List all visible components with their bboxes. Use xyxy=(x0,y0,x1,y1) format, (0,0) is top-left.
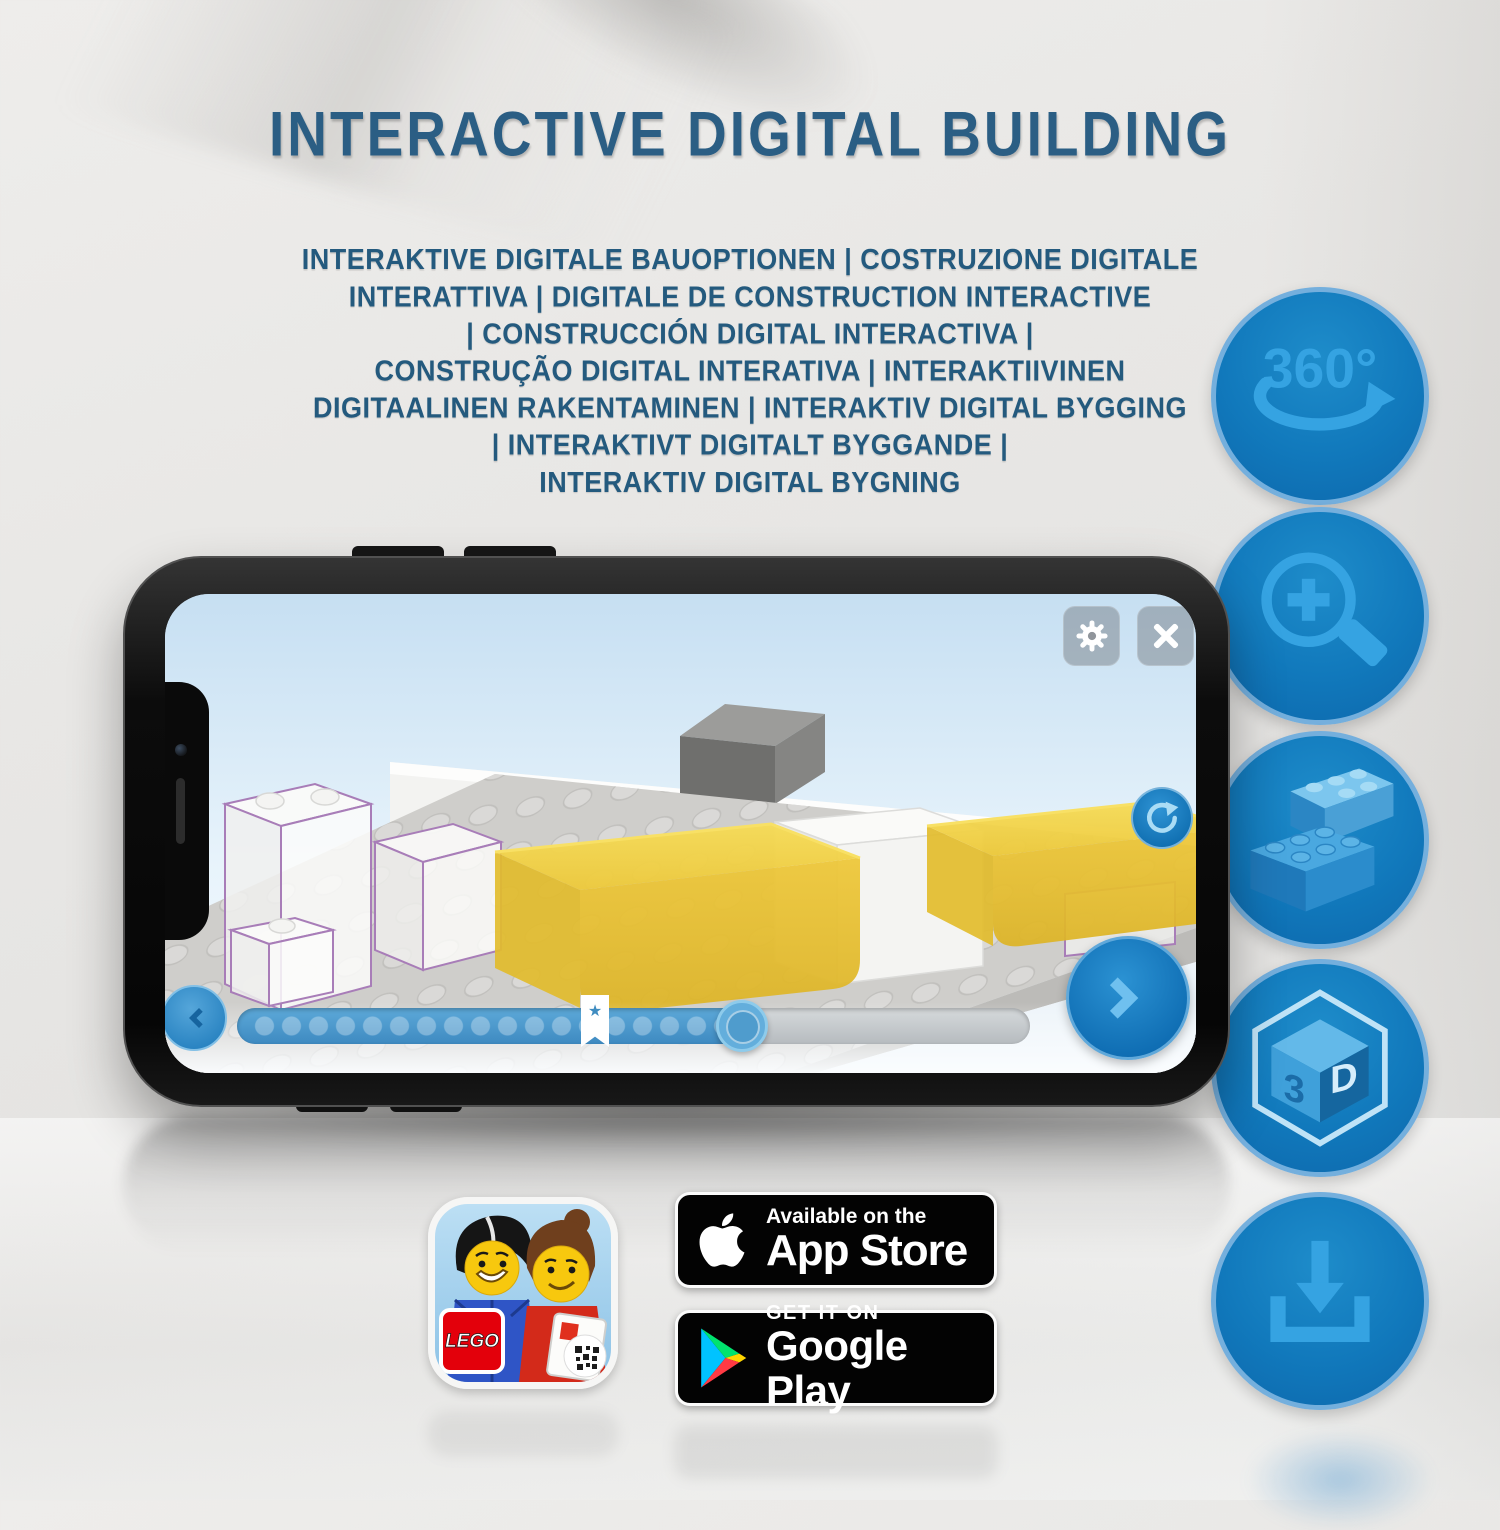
phone-mockup: ★ xyxy=(123,556,1230,1107)
lego-logo-text: LEGO xyxy=(445,1331,499,1352)
lego-app-artwork: LEGO xyxy=(435,1204,611,1382)
google-play-badge[interactable]: GET IT ON Google Play xyxy=(675,1310,997,1406)
phone-notch xyxy=(165,682,209,940)
app-store-tagline: Available on the xyxy=(766,1206,967,1228)
chevron-right-icon xyxy=(1097,967,1159,1029)
app-icon-reflection xyxy=(428,1412,618,1456)
app-store-label: App Store xyxy=(766,1228,967,1274)
badge-reflection xyxy=(675,1426,997,1478)
build-progress-slider[interactable]: ★ xyxy=(237,1008,1030,1044)
gear-icon xyxy=(1074,618,1110,654)
apple-logo-icon xyxy=(678,1208,766,1272)
360-rotation-icon: 360° xyxy=(1216,292,1424,500)
feature-download xyxy=(1211,1192,1429,1410)
feature-zoom xyxy=(1211,507,1429,725)
qr-code-icon xyxy=(575,1346,599,1370)
3d-right-label: D xyxy=(1330,1054,1358,1103)
slider-step-dots xyxy=(251,1008,731,1044)
slider-fill xyxy=(237,1008,742,1044)
minifig-girl xyxy=(519,1209,607,1382)
rotate-view-button[interactable] xyxy=(1131,787,1193,849)
google-play-label: Google Play xyxy=(766,1324,994,1412)
lego-app-icon: LEGO xyxy=(428,1197,618,1389)
feature-360-rotation: 360° xyxy=(1211,287,1429,505)
feature-3d-view: 3 D xyxy=(1211,959,1429,1177)
settings-button[interactable] xyxy=(1063,606,1120,666)
rotate-icon xyxy=(1142,798,1182,838)
camera-icon xyxy=(175,744,187,756)
download-circle-reflection xyxy=(1245,1430,1435,1530)
360-label: 360° xyxy=(1263,337,1377,399)
3d-cube-icon: 3 D xyxy=(1216,964,1424,1172)
slider-handle[interactable] xyxy=(716,1000,768,1052)
lego-logo: LEGO xyxy=(441,1310,503,1372)
chevron-left-icon xyxy=(179,1003,209,1033)
app-store-badge[interactable]: Available on the App Store xyxy=(675,1192,997,1288)
close-icon xyxy=(1149,619,1183,653)
download-icon xyxy=(1216,1197,1424,1405)
page-title: INTERACTIVE DIGITAL BUILDING xyxy=(0,98,1500,171)
lego-bricks-icon xyxy=(1216,736,1424,944)
feature-bricks xyxy=(1211,731,1429,949)
lego-3d-model-scene xyxy=(165,594,1196,1073)
close-button[interactable] xyxy=(1137,606,1194,666)
phone-screen: ★ xyxy=(165,594,1196,1073)
3d-left-label: 3 xyxy=(1284,1066,1305,1114)
play-triangle-icon xyxy=(678,1327,766,1389)
subtitle-line: INTERAKTIVE DIGITALE BAUOPTIONEN | COSTR… xyxy=(0,242,1500,279)
google-play-tagline: GET IT ON xyxy=(766,1303,994,1324)
zoom-in-icon xyxy=(1216,512,1424,720)
speaker-slot xyxy=(176,778,185,844)
next-step-button[interactable] xyxy=(1066,936,1190,1060)
